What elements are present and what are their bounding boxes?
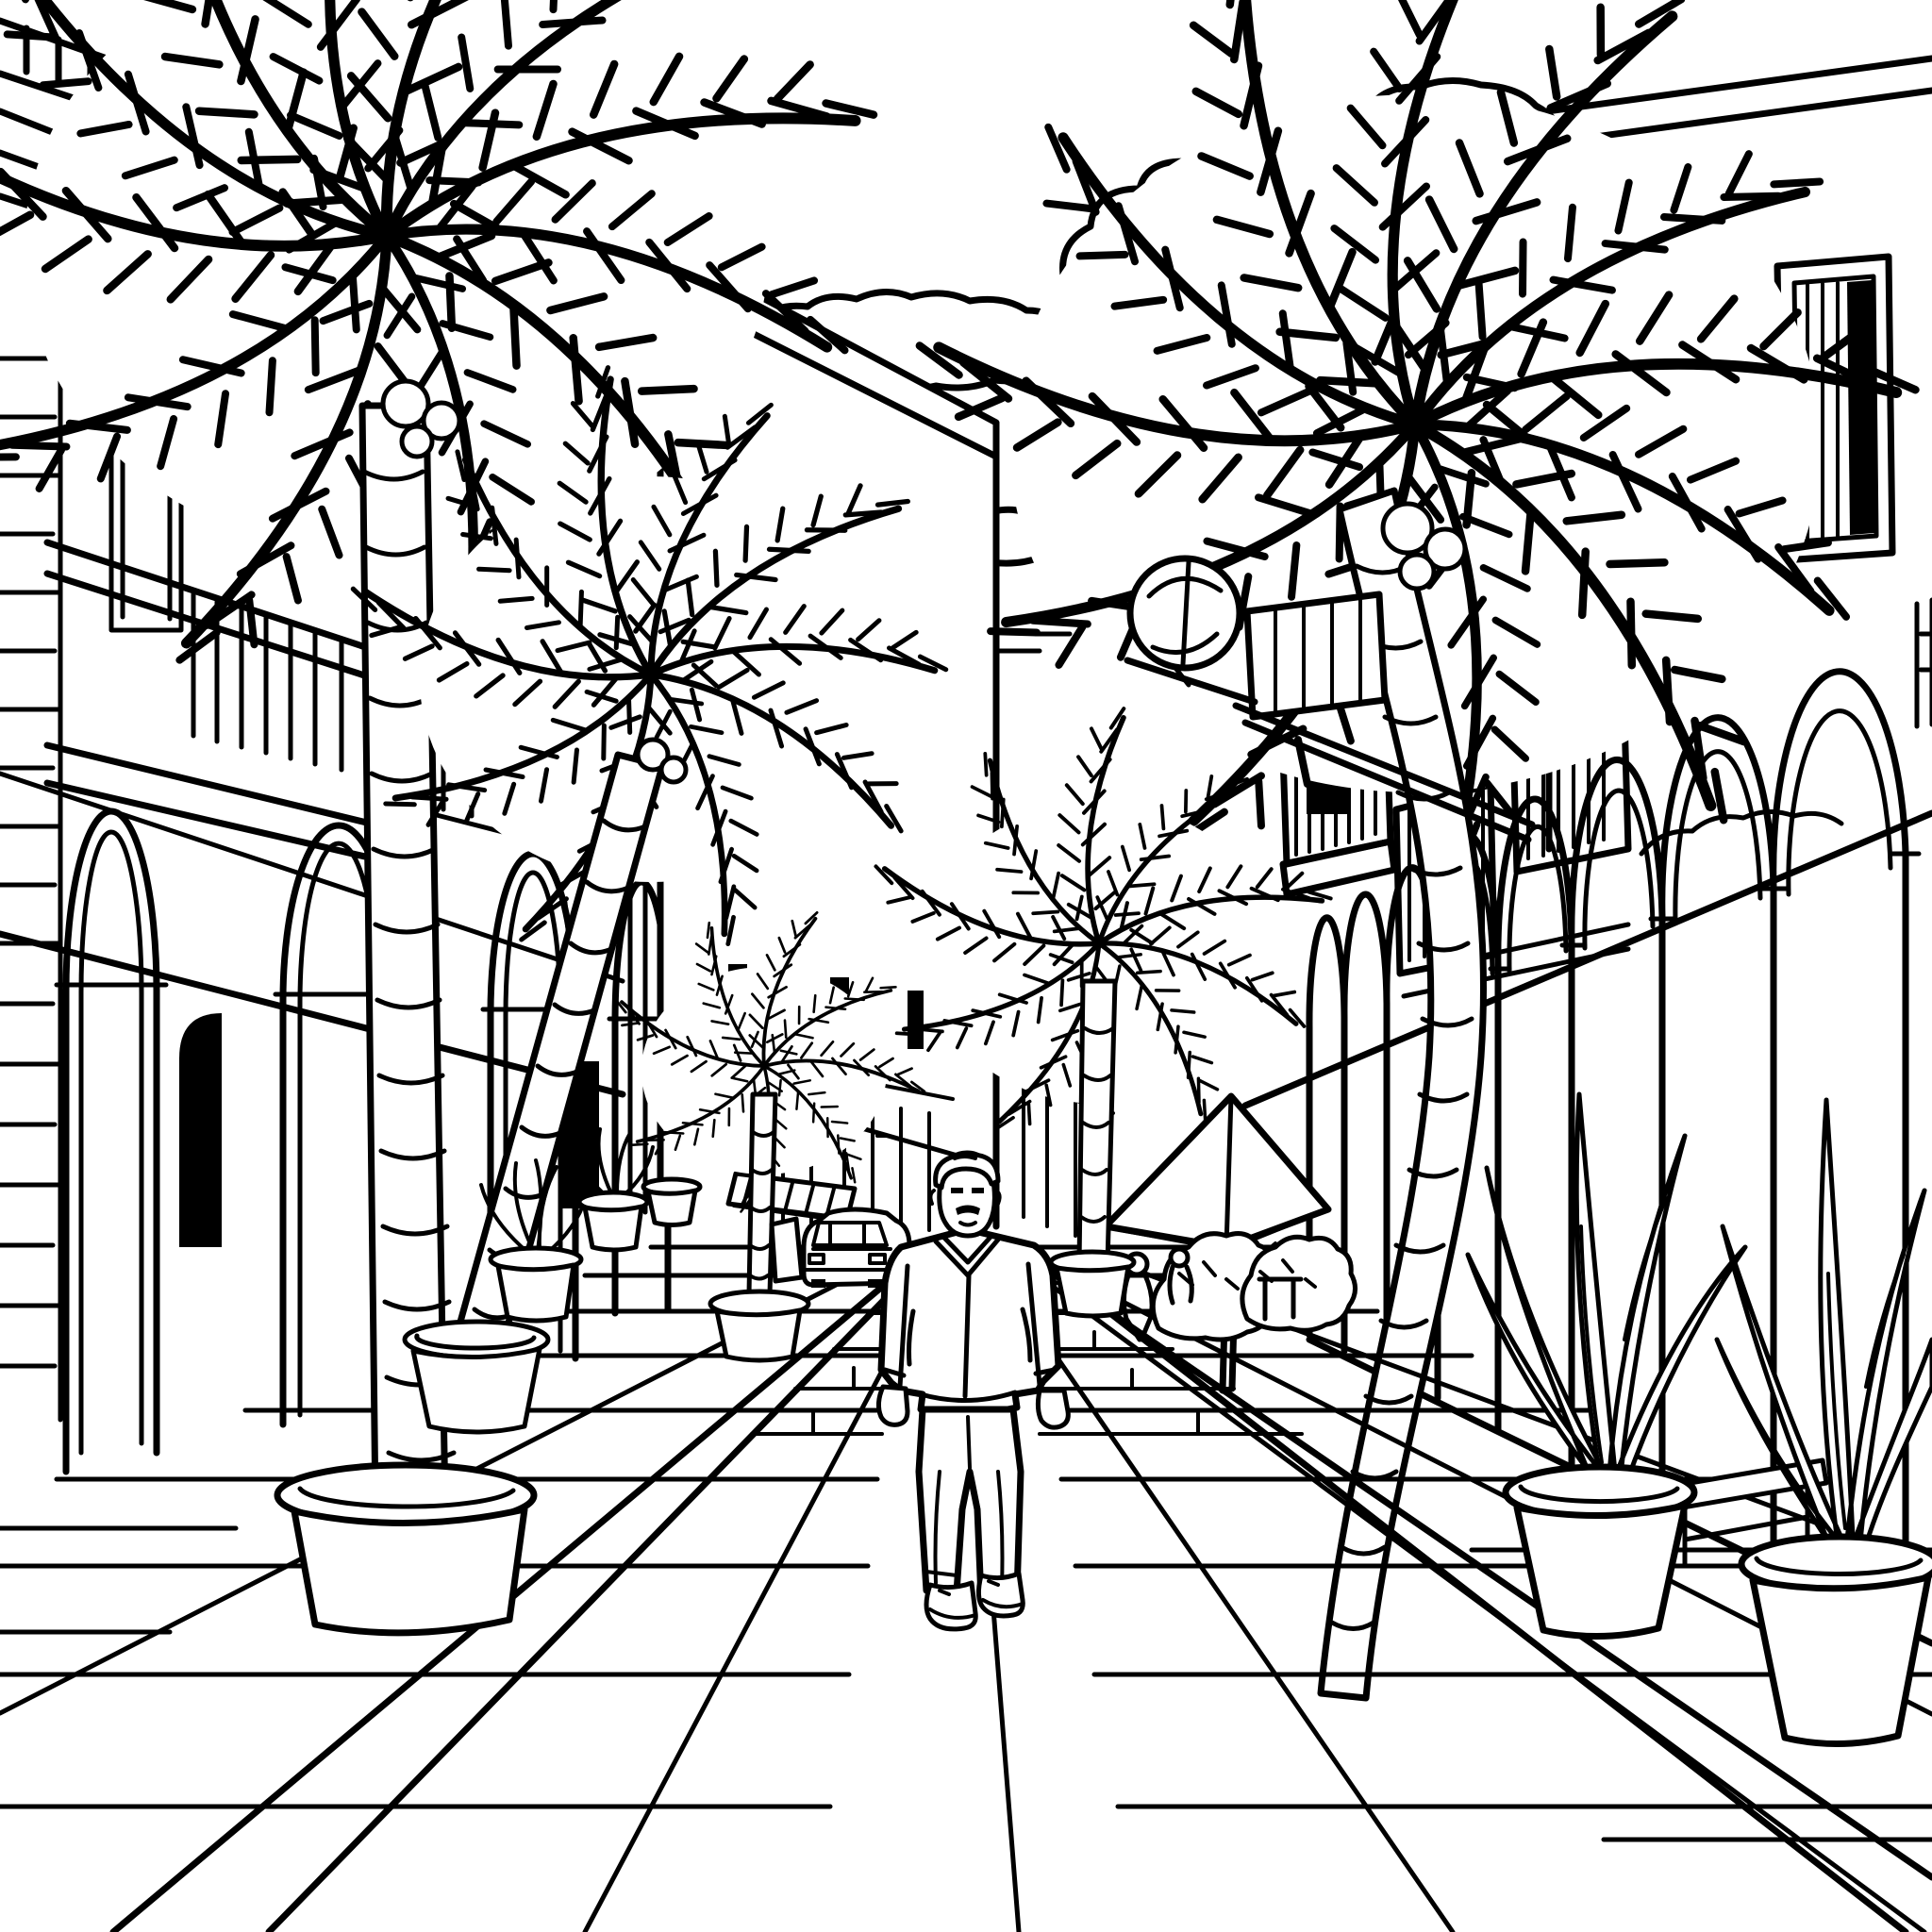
man-hand-right [1038, 1391, 1068, 1427]
man-shoe-left [926, 1583, 975, 1629]
potted-plant-right-a [1468, 1094, 1745, 1637]
lamp-bracket-box [1247, 594, 1385, 717]
palm-trunk [749, 1094, 775, 1294]
potted-plant-right-mid [1051, 1252, 1134, 1316]
potted-plant-right-b [1717, 1100, 1932, 1744]
planter-pot [277, 1465, 534, 1633]
planter-pot [405, 1322, 548, 1432]
planter-pot [710, 1291, 808, 1360]
man-hand-left [878, 1387, 908, 1424]
left-doorway-dark [179, 1013, 222, 1247]
left-quoins [0, 358, 60, 1420]
planter-pot [643, 1179, 700, 1225]
street-scene-drawing [0, 0, 1932, 1932]
man-shoe-right [978, 1574, 1023, 1616]
right-window-lower [1917, 600, 1932, 726]
car-back-sliver [772, 1219, 802, 1281]
